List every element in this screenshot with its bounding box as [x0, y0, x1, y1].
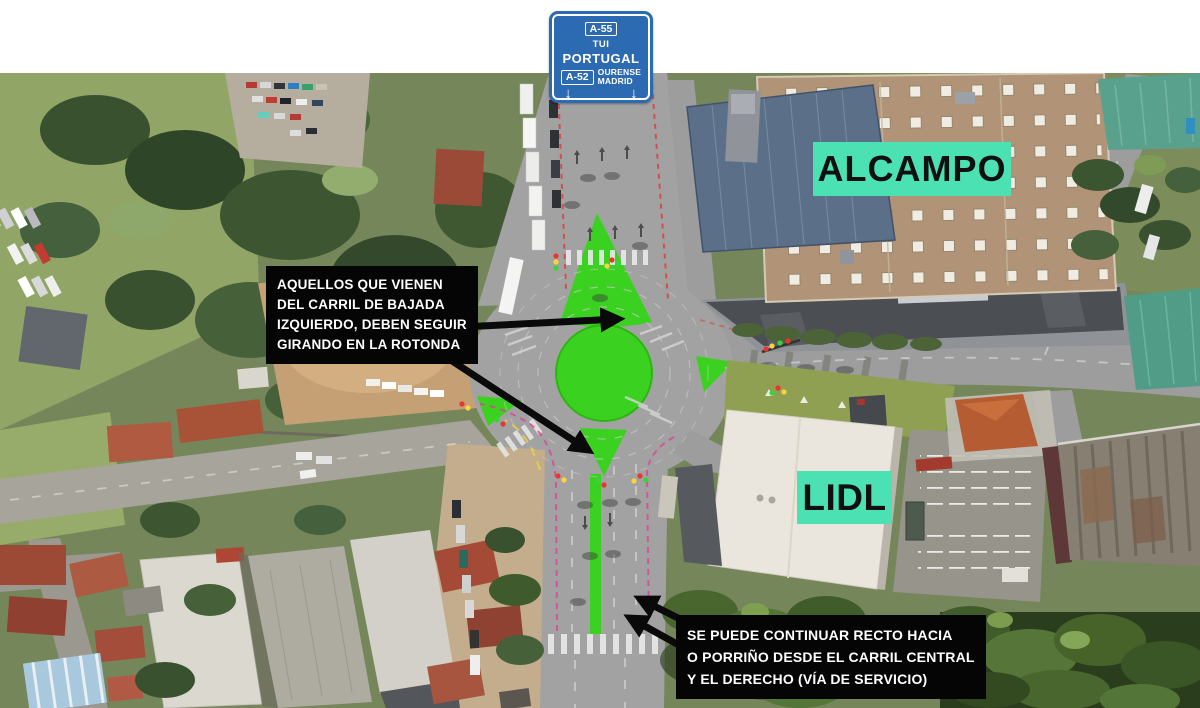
lane-down-arrow-icon: ↓	[564, 86, 572, 102]
note1-line3: IZQUIERDO, DEBEN SEGUIR	[277, 315, 467, 335]
industrial-warehouse	[1042, 424, 1200, 566]
motorway-sign: A-55 TUI PORTUGAL A-52 OURENSE MADRID ↓ …	[549, 11, 653, 103]
note-straight-ahead-instruction: SE PUEDE CONTINUAR RECTO HACIA O PORRIÑO…	[676, 615, 986, 699]
note2-line1: SE PUEDE CONTINUAR RECTO HACIA	[687, 624, 975, 646]
note1-line4: GIRANDO EN LA ROTONDA	[277, 335, 467, 355]
note1-line1: AQUELLOS QUE VIENEN	[277, 275, 467, 295]
lidl-label: LIDL	[797, 471, 892, 524]
south-road	[538, 452, 668, 708]
route-badge-a55: A-55	[585, 22, 618, 36]
satellite-map	[0, 0, 1200, 708]
destination-portugal: PORTUGAL	[563, 51, 640, 66]
junkyard-car-lot	[225, 73, 370, 168]
route-badge-a52: A-52	[561, 70, 594, 85]
satellite-map-canvas	[0, 0, 1200, 708]
note2-line3: Y EL DERECHO (VÍA DE SERVICIO)	[687, 668, 975, 690]
motorway-sign-panel: A-55 TUI PORTUGAL A-52 OURENSE MADRID ↓ …	[552, 14, 650, 100]
lane-down-arrow-icon: ↓	[630, 86, 638, 102]
note2-line2: O PORRIÑO DESDE EL CARRIL CENTRAL	[687, 646, 975, 668]
note1-line2: DEL CARRIL DE BAJADA	[277, 295, 467, 315]
alcampo-label: ALCAMPO	[813, 142, 1011, 196]
annotated-roundabout-screenshot: A-55 TUI PORTUGAL A-52 OURENSE MADRID ↓ …	[0, 0, 1200, 708]
roundabout-center-island	[556, 325, 652, 421]
destination-tui: TUI	[593, 39, 610, 50]
note-left-lane-instruction: AQUELLOS QUE VIENEN DEL CARRIL DE BAJADA…	[266, 266, 478, 364]
alcampo-building	[687, 73, 1135, 352]
